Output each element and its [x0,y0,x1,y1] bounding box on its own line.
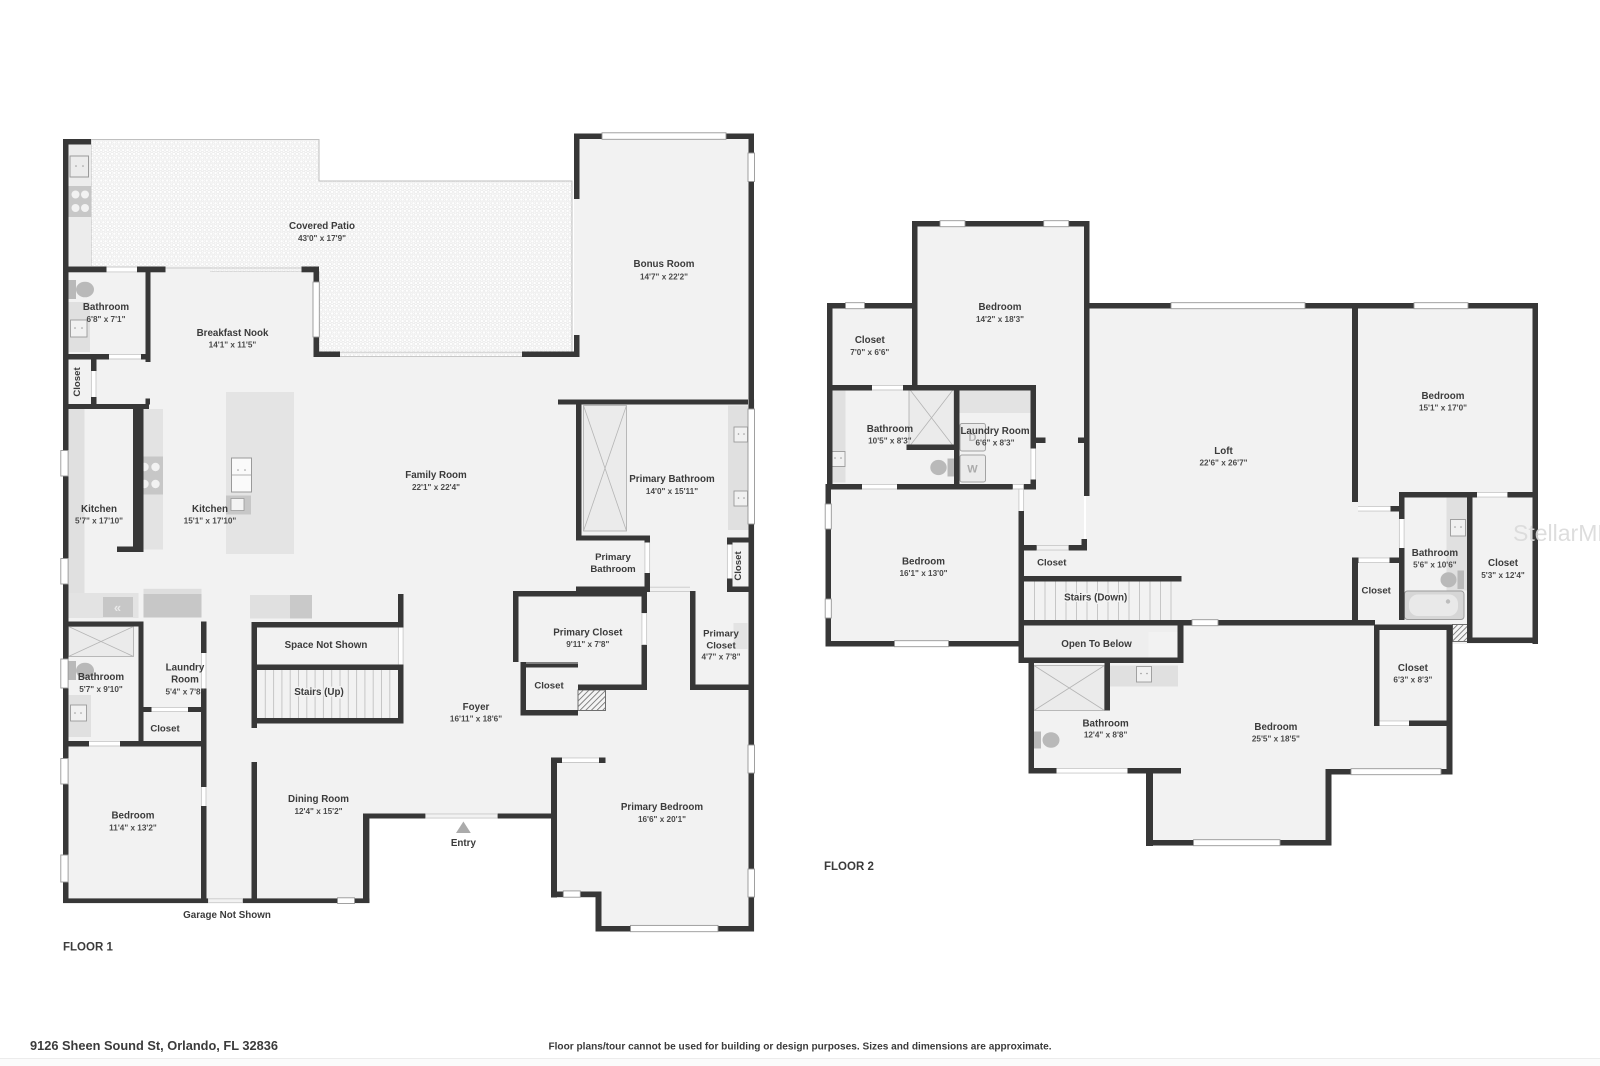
svg-text:Closet: Closet [534,681,564,692]
svg-text:W: W [967,464,978,476]
svg-text:Closet: Closet [855,335,886,346]
svg-text:Primary: Primary [703,629,739,640]
svg-text:Closet: Closet [733,551,744,581]
svg-text:Family Room: Family Room [405,470,467,481]
svg-text:16'6" x 20'1": 16'6" x 20'1" [638,815,686,824]
svg-text:Closet: Closet [72,367,83,397]
svg-text:Bedroom: Bedroom [1421,391,1464,402]
svg-text:12'4" x 15'2": 12'4" x 15'2" [294,807,342,816]
svg-text:Closet: Closet [1037,558,1067,569]
svg-text:14'0" x 15'11": 14'0" x 15'11" [646,487,698,496]
svg-text:Stairs (Down): Stairs (Down) [1064,593,1127,604]
svg-text:5'7" x 9'10": 5'7" x 9'10" [79,685,123,694]
svg-text:Dining Room: Dining Room [288,794,349,805]
svg-text:Bedroom: Bedroom [111,811,154,822]
svg-text:9'11" x 7'8": 9'11" x 7'8" [566,640,609,649]
svg-text:Kitchen: Kitchen [192,504,228,515]
svg-text:Primary: Primary [595,552,631,563]
svg-text:5'6" x 10'6": 5'6" x 10'6" [1413,561,1457,570]
svg-text:Laundry: Laundry [166,663,205,674]
svg-text:Bathroom: Bathroom [867,424,914,435]
svg-text:6'3" x 8'3": 6'3" x 8'3" [1393,676,1432,685]
svg-text:25'5" x 18'5": 25'5" x 18'5" [1252,735,1300,744]
svg-text:Closet: Closet [1488,558,1519,569]
svg-text:FLOOR 2: FLOOR 2 [824,861,874,873]
svg-text:Laundry Room: Laundry Room [960,426,1029,437]
svg-text:6'8" x 7'1": 6'8" x 7'1" [87,315,126,324]
svg-text:4'7" x 7'8": 4'7" x 7'8" [702,653,741,662]
svg-text:14'1" x 11'5": 14'1" x 11'5" [209,341,257,350]
svg-text:FLOOR 1: FLOOR 1 [63,942,113,954]
svg-text:6'6" x 8'3": 6'6" x 8'3" [976,439,1015,448]
svg-text:Bedroom: Bedroom [978,302,1021,313]
svg-text:Garage Not Shown: Garage Not Shown [183,910,271,921]
svg-text:10'5" x 8'3": 10'5" x 8'3" [868,437,912,446]
svg-text:22'6" x 26'7": 22'6" x 26'7" [1199,459,1247,468]
svg-text:Open To Below: Open To Below [1061,639,1132,650]
svg-text:Bathroom: Bathroom [1082,719,1129,730]
svg-text:StellarMLS: StellarMLS [1513,520,1600,546]
svg-text:«: « [114,600,121,615]
svg-text:Covered Patio: Covered Patio [289,221,355,232]
svg-text:Floor plans/tour cannot be use: Floor plans/tour cannot be used for buil… [548,1042,1051,1053]
svg-text:Closet: Closet [1398,663,1429,674]
svg-text:7'0" x 6'6": 7'0" x 6'6" [850,348,889,357]
svg-text:14'7" x 22'2": 14'7" x 22'2" [640,273,688,282]
svg-text:5'4" x 7'8": 5'4" x 7'8" [166,688,205,697]
svg-text:Primary Bedroom: Primary Bedroom [621,802,704,813]
svg-text:Closet: Closet [1362,586,1392,597]
svg-text:Closet: Closet [706,641,736,652]
svg-text:Bathroom: Bathroom [1412,548,1459,559]
svg-text:Stairs (Up): Stairs (Up) [294,687,344,698]
svg-text:43'0" x 17'9": 43'0" x 17'9" [298,234,346,243]
svg-text:16'11" x 18'6": 16'11" x 18'6" [450,715,502,724]
svg-text:Primary Closet: Primary Closet [553,628,623,639]
svg-text:Breakfast Nook: Breakfast Nook [197,328,269,339]
svg-text:5'3" x 12'4": 5'3" x 12'4" [1481,571,1525,580]
svg-text:12'4" x 8'8": 12'4" x 8'8" [1084,731,1128,740]
svg-text:11'4" x 13'2": 11'4" x 13'2" [109,824,157,833]
svg-text:Entry: Entry [451,838,477,849]
svg-text:Bathroom: Bathroom [83,302,130,313]
svg-text:Space Not Shown: Space Not Shown [285,640,368,651]
svg-text:5'7" x 17'10": 5'7" x 17'10" [75,517,123,526]
svg-text:Room: Room [171,675,199,686]
svg-text:Bedroom: Bedroom [902,557,945,568]
svg-text:Bathroom: Bathroom [590,564,635,575]
svg-text:Bonus Room: Bonus Room [634,259,695,270]
svg-text:Foyer: Foyer [463,702,490,713]
svg-text:15'1" x 17'0": 15'1" x 17'0" [1419,404,1467,413]
svg-text:Bathroom: Bathroom [78,672,125,683]
svg-text:Bedroom: Bedroom [1254,722,1297,733]
svg-text:Primary Bathroom: Primary Bathroom [629,474,715,485]
svg-text:9126 Sheen Sound St, Orlando,: 9126 Sheen Sound St, Orlando, FL 32836 [30,1038,278,1053]
svg-text:Closet: Closet [150,724,180,735]
svg-text:15'1" x 17'10": 15'1" x 17'10" [184,517,237,526]
svg-text:16'1" x 13'0": 16'1" x 13'0" [899,569,947,578]
svg-text:Loft: Loft [1214,446,1233,457]
svg-text:Kitchen: Kitchen [81,504,117,515]
svg-text:22'1" x 22'4": 22'1" x 22'4" [412,483,460,492]
svg-text:14'2" x 18'3": 14'2" x 18'3" [976,315,1024,324]
